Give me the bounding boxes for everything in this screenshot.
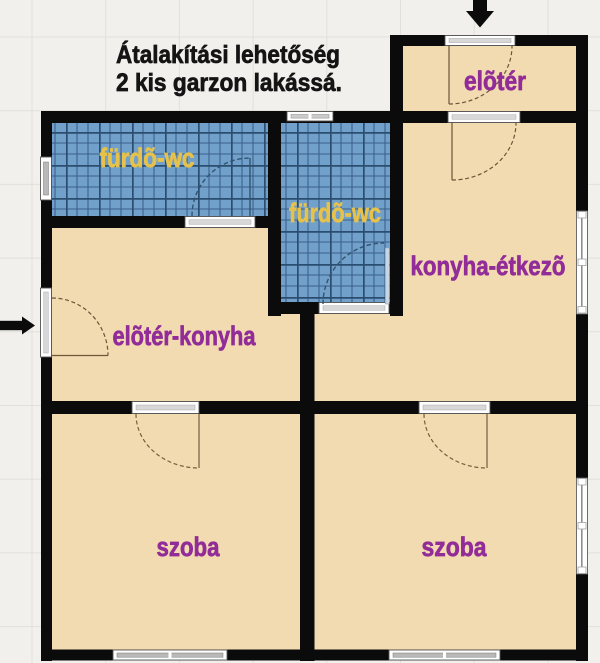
svg-text:elõtér: elõtér	[464, 66, 526, 96]
svg-text:szoba: szoba	[422, 532, 488, 562]
svg-text:Átalakítási lehetőség: Átalakítási lehetőség	[116, 40, 340, 69]
svg-text:konyha-étkezõ: konyha-étkezõ	[411, 251, 566, 281]
svg-text:2 kis garzon lakássá.: 2 kis garzon lakássá.	[116, 69, 342, 97]
svg-text:fürdõ-wc: fürdõ-wc	[100, 143, 195, 173]
svg-text:fürdõ-wc: fürdõ-wc	[289, 198, 381, 228]
svg-text:szoba: szoba	[157, 532, 221, 562]
svg-text:elõtér-konyha: elõtér-konyha	[113, 321, 257, 351]
